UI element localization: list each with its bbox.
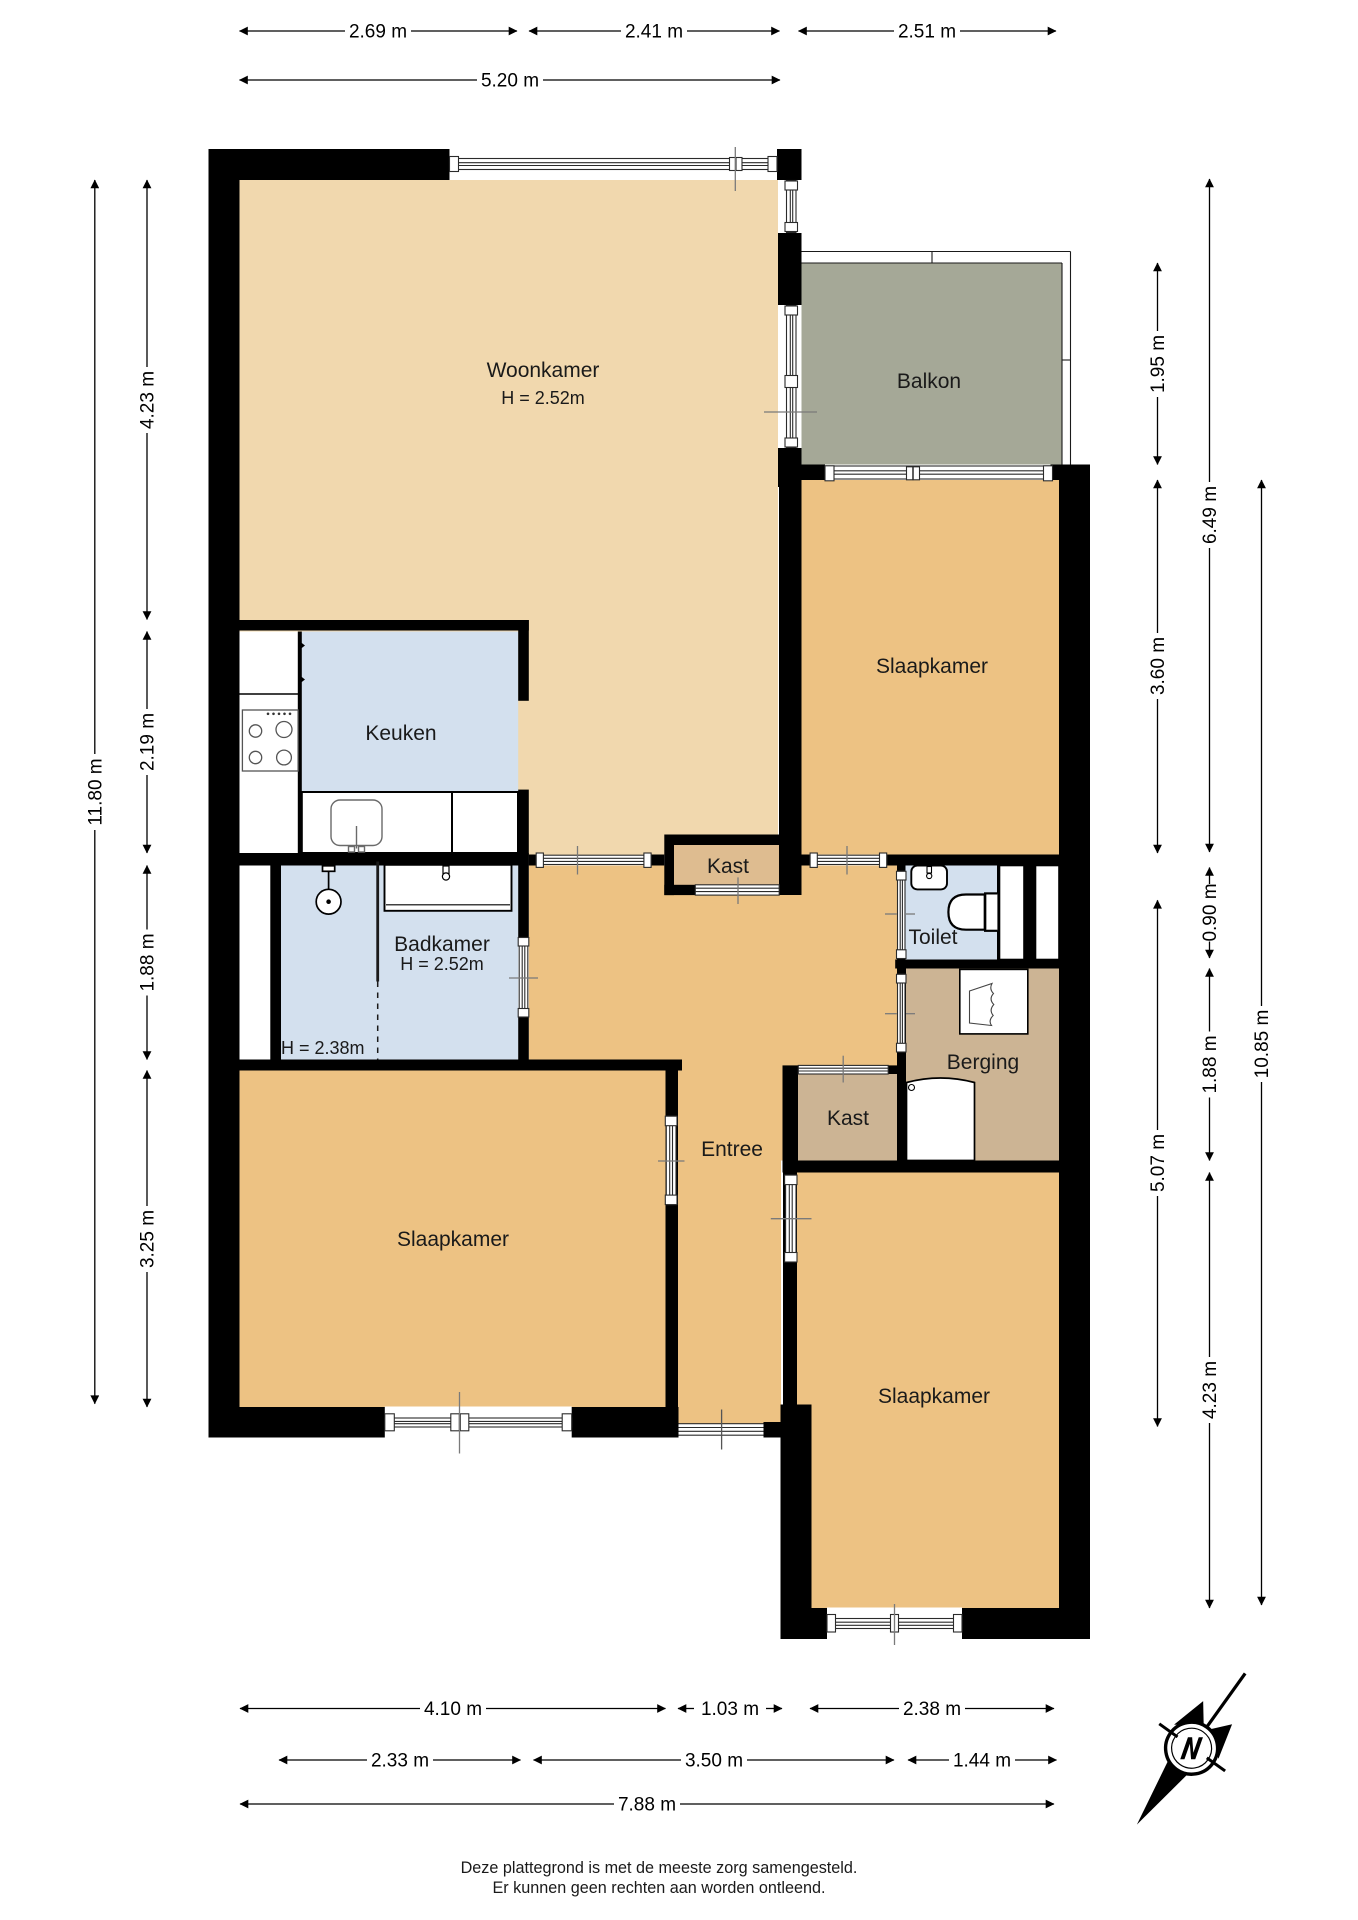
svg-text:7.88 m: 7.88 m (618, 1795, 676, 1816)
svg-text:Toilet: Toilet (908, 926, 957, 949)
svg-text:4.10 m: 4.10 m (424, 1699, 482, 1720)
svg-text:Deze plattegrond is met de mee: Deze plattegrond is met de meeste zorg s… (461, 1859, 858, 1877)
svg-text:H = 2.52m: H = 2.52m (501, 388, 585, 408)
svg-text:2.51 m: 2.51 m (898, 22, 956, 43)
svg-text:1.88 m: 1.88 m (1200, 1035, 1221, 1093)
svg-text:3.50 m: 3.50 m (685, 1751, 743, 1772)
svg-text:Kast: Kast (707, 855, 749, 878)
svg-text:6.49 m: 6.49 m (1200, 486, 1221, 544)
svg-text:Woonkamer: Woonkamer (487, 359, 600, 382)
svg-text:1.88 m: 1.88 m (138, 933, 159, 991)
svg-text:Slaapkamer: Slaapkamer (397, 1228, 509, 1251)
svg-text:1.03 m: 1.03 m (701, 1699, 759, 1720)
svg-text:5.07 m: 5.07 m (1148, 1134, 1169, 1192)
svg-text:Kast: Kast (827, 1107, 869, 1130)
svg-text:2.69 m: 2.69 m (349, 22, 407, 43)
svg-text:3.60 m: 3.60 m (1148, 637, 1169, 695)
svg-text:0.90 m: 0.90 m (1200, 883, 1221, 941)
svg-text:Slaapkamer: Slaapkamer (878, 1385, 990, 1408)
svg-text:Er kunnen geen rechten aan wor: Er kunnen geen rechten aan worden ontlee… (493, 1879, 826, 1897)
svg-text:2.38 m: 2.38 m (903, 1699, 961, 1720)
svg-text:1.44 m: 1.44 m (953, 1751, 1011, 1772)
svg-text:Entree: Entree (701, 1138, 763, 1161)
svg-text:4.23 m: 4.23 m (138, 371, 159, 429)
svg-text:2.33 m: 2.33 m (371, 1751, 429, 1772)
svg-text:Berging: Berging (947, 1051, 1019, 1074)
svg-text:H = 2.38m: H = 2.38m (281, 1038, 365, 1058)
svg-text:3.25 m: 3.25 m (138, 1210, 159, 1268)
svg-text:H = 2.52m: H = 2.52m (400, 954, 484, 974)
svg-text:Balkon: Balkon (897, 370, 961, 393)
svg-text:5.20 m: 5.20 m (481, 71, 539, 92)
svg-text:2.41 m: 2.41 m (625, 22, 683, 43)
svg-text:Keuken: Keuken (365, 722, 436, 745)
svg-text:Slaapkamer: Slaapkamer (876, 655, 988, 678)
svg-text:2.19 m: 2.19 m (138, 713, 159, 771)
svg-text:10.85 m: 10.85 m (1252, 1010, 1273, 1079)
svg-text:Badkamer: Badkamer (394, 933, 490, 956)
svg-text:11.80 m: 11.80 m (85, 758, 106, 825)
svg-text:1.95 m: 1.95 m (1148, 335, 1169, 393)
svg-text:4.23 m: 4.23 m (1200, 1361, 1221, 1419)
